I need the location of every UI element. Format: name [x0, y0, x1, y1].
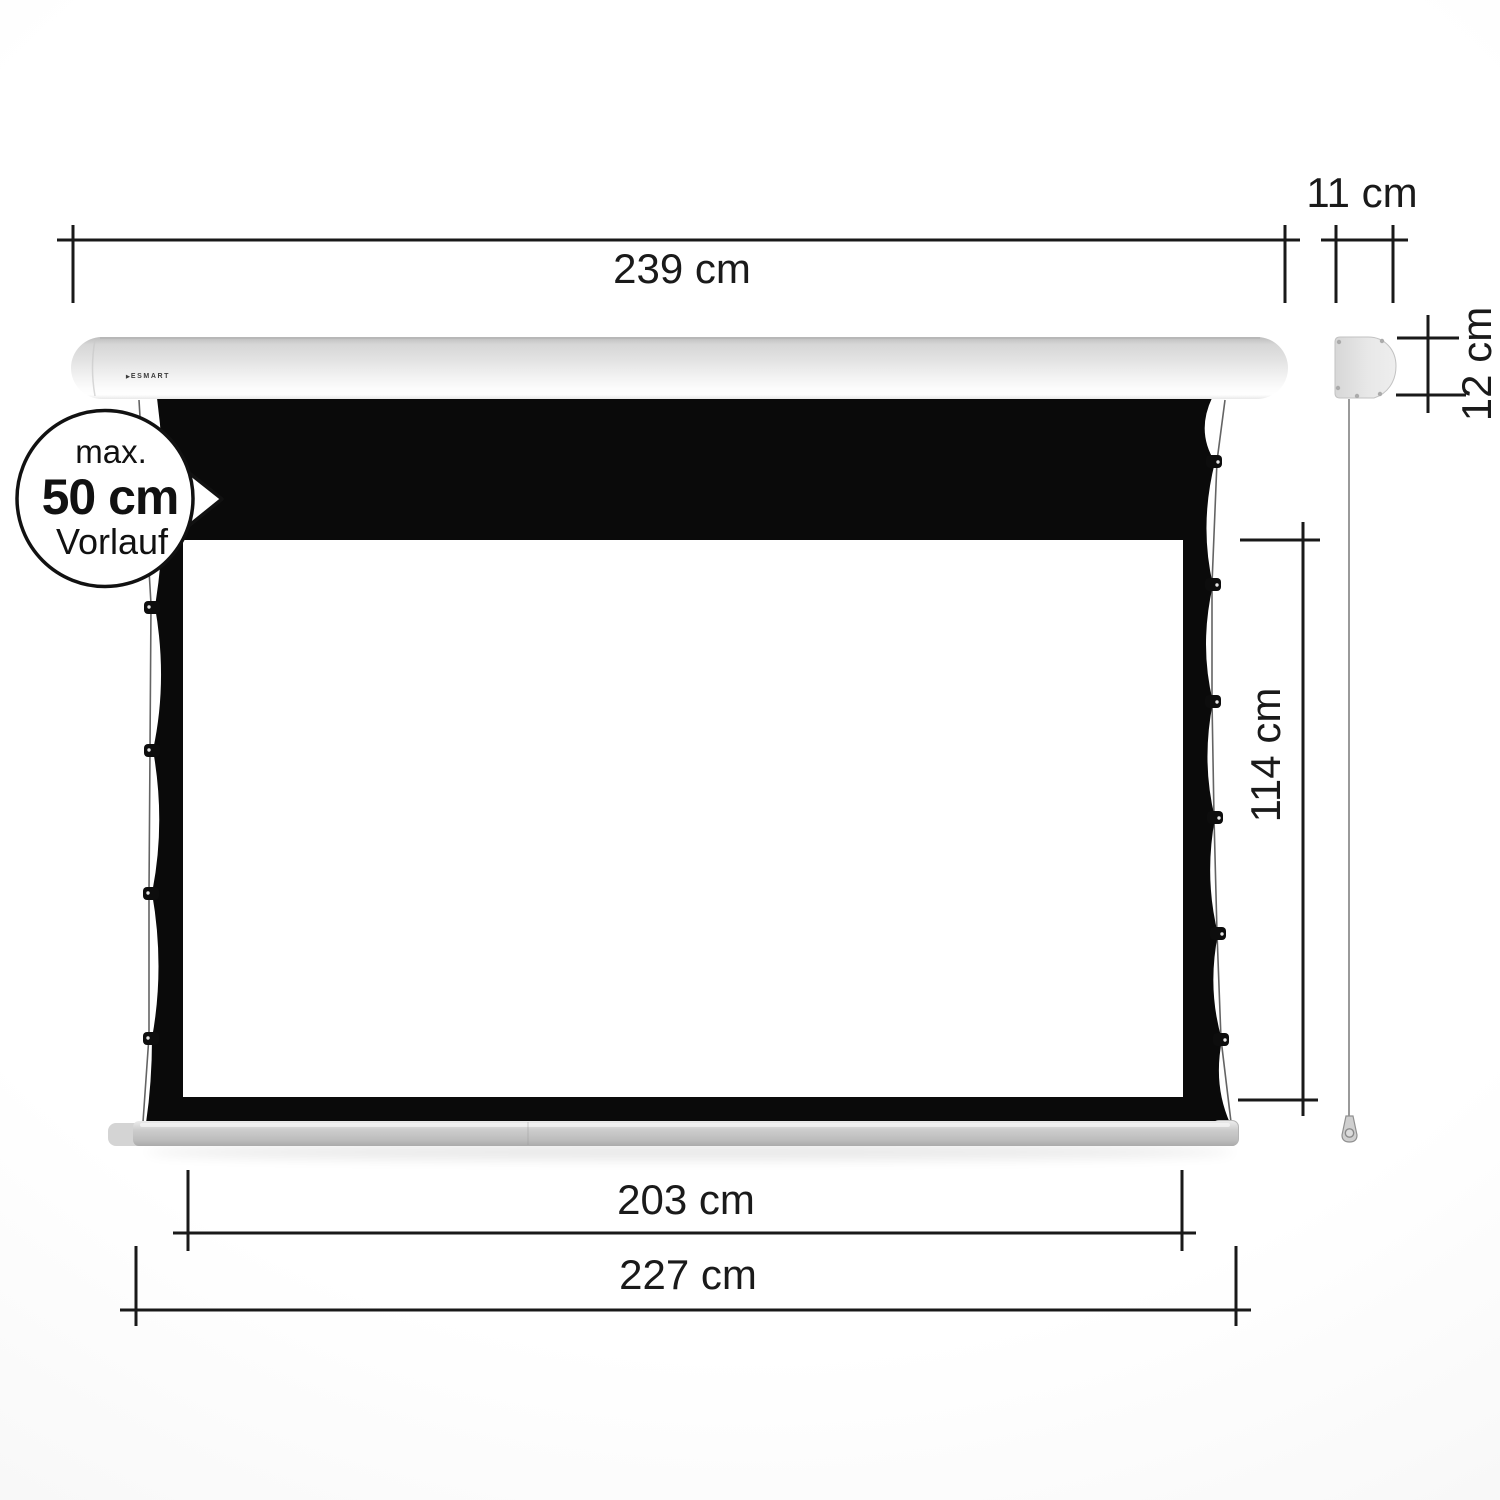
dimension-viewing-height-label: 114 cm	[1242, 688, 1290, 823]
product-dimension-diagram: ▶ ESMART 239 cm 11 cm 12 cm 114 cm 203 c…	[0, 0, 1500, 1500]
pull-cord-tassel	[1342, 1116, 1357, 1142]
housing-side-view	[1335, 337, 1396, 398]
esmart-logo-arrow-icon: ▶	[126, 374, 130, 380]
bottom-bar	[108, 1120, 1239, 1146]
bottom-bar-shadow	[145, 1144, 1235, 1160]
callout-max-label: max.	[75, 433, 147, 471]
callout-50cm-label: 50 cm	[42, 468, 179, 526]
viewing-area	[183, 540, 1183, 1097]
dimension-housing-height-label: 12 cm	[1453, 307, 1500, 421]
housing-front	[71, 337, 1288, 399]
dimension-viewing-width-label: 203 cm	[617, 1176, 755, 1224]
dimension-housing-depth-label: 11 cm	[1306, 169, 1417, 217]
dimension-bottom-bar-width-label: 227 cm	[619, 1251, 757, 1299]
dimension-housing-width-label: 239 cm	[613, 245, 751, 293]
cable-clips-left	[143, 601, 160, 1045]
esmart-logo: ▶ ESMART	[126, 373, 170, 380]
esmart-logo-text: ESMART	[131, 373, 170, 380]
callout-vorlauf-label: Vorlauf	[56, 521, 168, 563]
dimension-11-lines	[1321, 225, 1408, 303]
